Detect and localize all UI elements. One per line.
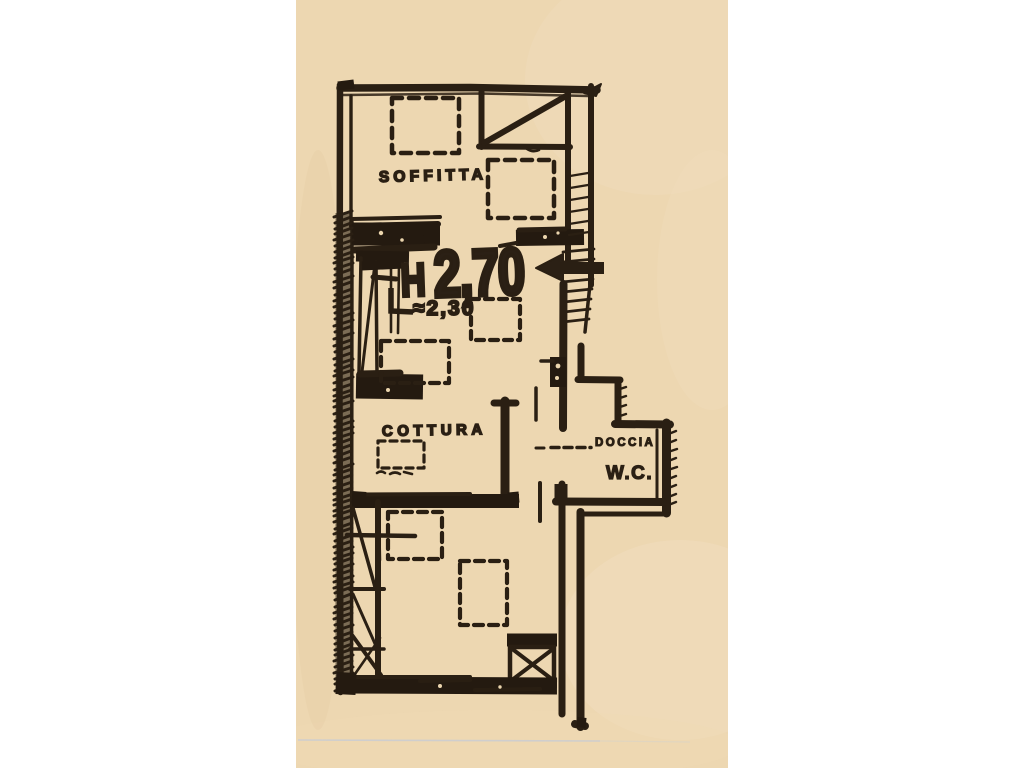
svg-text:≈2,30: ≈2,30	[413, 297, 475, 320]
svg-text:SOFFITTA: SOFFITTA	[379, 166, 488, 186]
svg-text:W.C.: W.C.	[606, 463, 653, 484]
svg-text:DOCCIA: DOCCIA	[595, 437, 655, 449]
svg-text:COTTURA: COTTURA	[382, 421, 487, 440]
